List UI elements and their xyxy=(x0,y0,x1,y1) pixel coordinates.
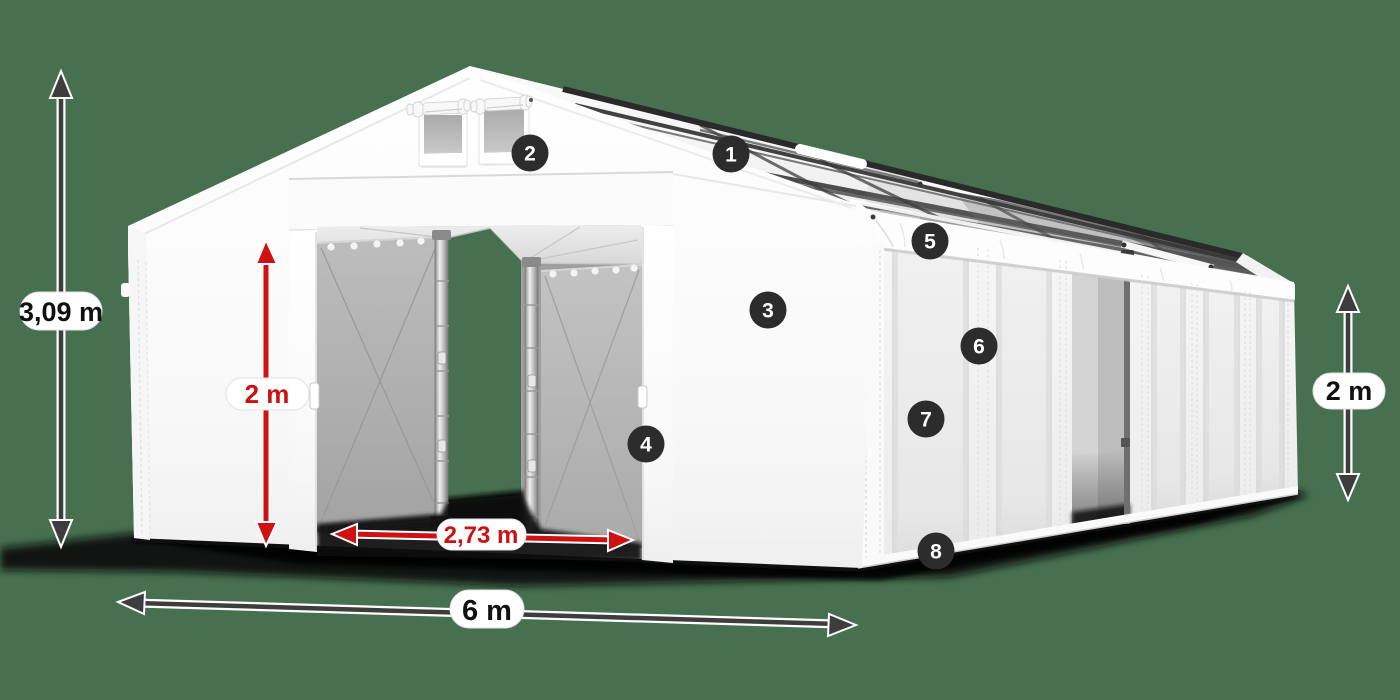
svg-text:4: 4 xyxy=(640,434,652,457)
svg-text:1: 1 xyxy=(725,144,737,167)
svg-text:8: 8 xyxy=(930,541,942,564)
svg-text:2 m: 2 m xyxy=(1326,376,1373,406)
svg-text:2 m: 2 m xyxy=(245,379,290,409)
svg-text:3,09 m: 3,09 m xyxy=(19,297,103,327)
svg-text:6: 6 xyxy=(973,336,985,359)
svg-text:6 m: 6 m xyxy=(462,595,512,627)
svg-text:2: 2 xyxy=(524,143,536,166)
svg-text:3: 3 xyxy=(762,300,774,323)
svg-text:7: 7 xyxy=(920,409,932,432)
svg-text:5: 5 xyxy=(924,231,936,254)
svg-text:2,73 m: 2,73 m xyxy=(444,522,519,549)
